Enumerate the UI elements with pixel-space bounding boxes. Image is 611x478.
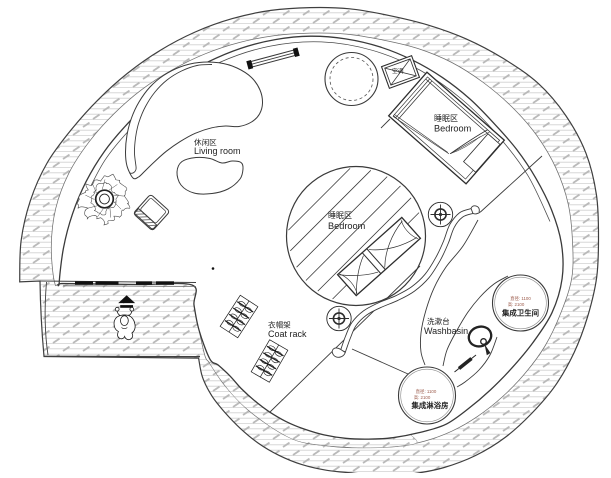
svg-text:Coat rack: Coat rack <box>268 329 307 339</box>
svg-text:高: 2100: 高: 2100 <box>508 301 525 308</box>
svg-text:直径: 1100: 直径: 1100 <box>416 388 437 394</box>
svg-text:Washbasin: Washbasin <box>424 326 468 336</box>
svg-text:Living room: Living room <box>194 146 241 156</box>
svg-text:洗漱台: 洗漱台 <box>427 316 450 326</box>
svg-text:睡眠区: 睡眠区 <box>434 114 458 123</box>
svg-text:空调: 空调 <box>392 67 404 75</box>
svg-text:Bedroom: Bedroom <box>434 124 472 134</box>
svg-text:衣帽架: 衣帽架 <box>268 320 291 330</box>
svg-text:Bedroom: Bedroom <box>328 221 366 231</box>
svg-text:高: 2100: 高: 2100 <box>414 394 431 401</box>
svg-text:集成淋浴房: 集成淋浴房 <box>411 401 449 410</box>
svg-text:直径: 1100: 直径: 1100 <box>510 295 531 301</box>
svg-text:集成卫生间: 集成卫生间 <box>501 309 539 318</box>
svg-text:睡眠区: 睡眠区 <box>328 211 352 220</box>
